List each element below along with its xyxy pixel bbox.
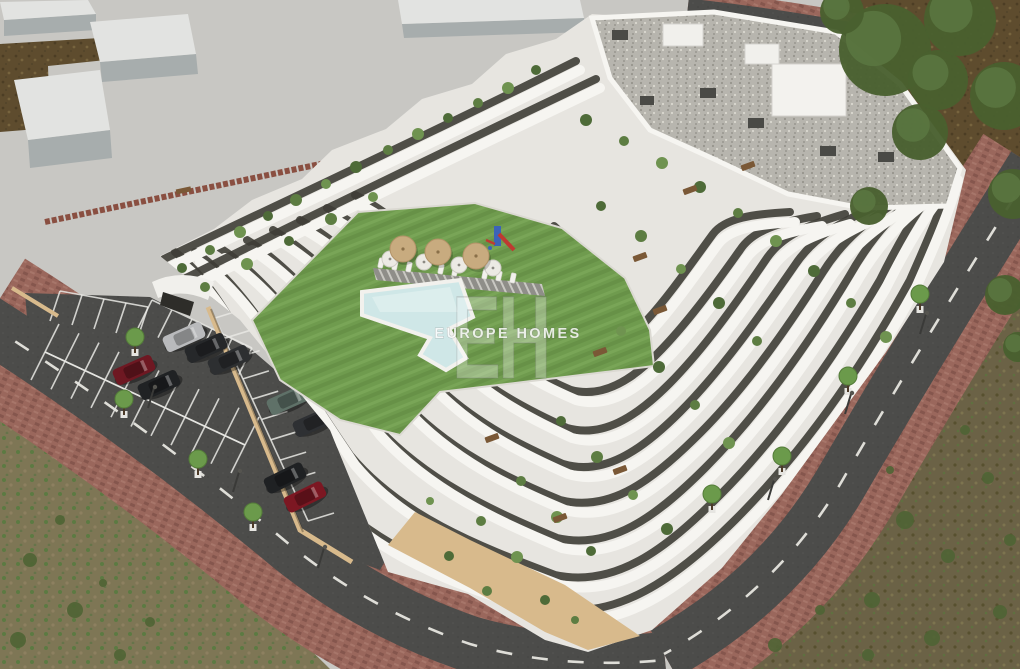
terrace-plant [177, 263, 187, 273]
terrace-plant [661, 523, 673, 535]
roof-bulkhead [745, 44, 779, 64]
terrace-plant [571, 616, 579, 624]
tree-crown [115, 390, 133, 408]
terrace-plant [752, 336, 762, 346]
terrace-plant [350, 161, 362, 173]
lamp-head [153, 385, 157, 389]
shrub [114, 649, 126, 661]
shrub [886, 466, 894, 474]
terrace-plant [321, 179, 331, 189]
roof-vent [612, 30, 628, 40]
tree-crown [839, 367, 857, 385]
canopy-tree [892, 104, 948, 160]
shrub [941, 549, 955, 563]
terrace-plant [635, 230, 647, 242]
lamp-head [925, 311, 929, 315]
terrace-plant [531, 65, 541, 75]
aerial-render: EH EUROPE HOMES [0, 0, 1020, 669]
terrace-plant [234, 226, 246, 238]
terrace-plant [290, 194, 302, 206]
tree-crown [189, 450, 207, 468]
roof-bulkhead [663, 24, 703, 46]
terrace-plant [516, 476, 526, 486]
terrace-plant [619, 136, 629, 146]
umbrella-pole [423, 261, 426, 264]
roof-vent [748, 118, 764, 128]
terrace-plant [733, 208, 743, 218]
canopy-light [896, 108, 930, 142]
canopy-tree [908, 50, 968, 110]
terrace-plant [591, 451, 603, 463]
terrace-plant [880, 331, 892, 343]
terrace-plant [368, 192, 378, 202]
terrace-plant [713, 297, 725, 309]
tree-crown [244, 503, 262, 521]
terrace-plant [580, 114, 592, 126]
terrace-plant [444, 551, 454, 561]
lamp-head [773, 477, 777, 481]
shrub [23, 553, 37, 567]
shrub [768, 638, 782, 652]
shrub [67, 602, 83, 618]
terrace-plant [556, 416, 566, 426]
canopy-tree [850, 187, 888, 225]
terrace-plant [502, 82, 514, 94]
umbrella-pole [389, 258, 392, 261]
watermark-brand-text: EUROPE HOMES [434, 326, 581, 342]
canopy-light [988, 278, 1012, 302]
shrub [10, 632, 26, 648]
terrace-plant [412, 128, 424, 140]
shrub [960, 425, 970, 435]
terrace-plant [200, 282, 210, 292]
canopy-light [913, 55, 949, 91]
terrace-plant [325, 213, 337, 225]
lamp-head [850, 391, 854, 395]
shrub [896, 511, 914, 529]
terrace-plant [383, 145, 393, 155]
terrace-plant [723, 437, 735, 449]
terrace-plant [628, 490, 638, 500]
terrace-plant [690, 400, 700, 410]
terrace-plant [443, 113, 453, 123]
roof-vent [640, 96, 654, 105]
umbrella-pole [492, 267, 495, 270]
terrace-plant [426, 497, 434, 505]
roof-bulkhead [772, 64, 846, 116]
massing-block-top [14, 70, 110, 140]
terrace-plant [284, 236, 294, 246]
shrub [815, 605, 825, 615]
shrub [862, 649, 874, 661]
tree-crown [703, 485, 721, 503]
terrace-plant [473, 98, 483, 108]
terrace-plant [616, 326, 626, 336]
roof-vent [700, 88, 716, 98]
parasol-pole [401, 247, 404, 250]
canopy-light [853, 190, 876, 213]
shrub [924, 630, 940, 646]
terrace-plant [676, 264, 686, 274]
terrace-plant [263, 211, 273, 221]
parasol-pole [436, 250, 439, 253]
shrub [145, 617, 155, 627]
terrace-plant [205, 245, 215, 255]
umbrella-pole [458, 264, 461, 267]
terrace-plant [846, 298, 856, 308]
shrub [1004, 534, 1016, 546]
terrace-plant [808, 265, 820, 277]
tree-crown [773, 447, 791, 465]
roof-vent [878, 152, 894, 162]
terrace-plant [596, 201, 606, 211]
shrub [864, 592, 880, 608]
shrub [982, 472, 994, 484]
lamp-head [323, 545, 327, 549]
tree-crown [126, 328, 144, 346]
canopy-light [975, 67, 1016, 108]
tree-crown [911, 285, 929, 303]
terrace-plant [586, 546, 596, 556]
render-canvas: EH EUROPE HOMES [0, 0, 1020, 669]
roof-vent [820, 146, 836, 156]
terrace-plant [482, 586, 492, 596]
terrace-plant [770, 235, 782, 247]
shrub [55, 515, 65, 525]
shrub [99, 579, 107, 587]
terrace-plant [653, 361, 665, 373]
terrace-plant [656, 157, 668, 169]
terrace-plant [511, 551, 523, 563]
lamp-head [238, 469, 242, 473]
massing-block-top [90, 14, 196, 62]
terrace-plant [540, 595, 550, 605]
playground-post [488, 246, 492, 250]
terrace-plant [241, 258, 253, 270]
parasol-pole [474, 254, 477, 257]
terrace-plant [476, 516, 486, 526]
shrub [993, 605, 1007, 619]
